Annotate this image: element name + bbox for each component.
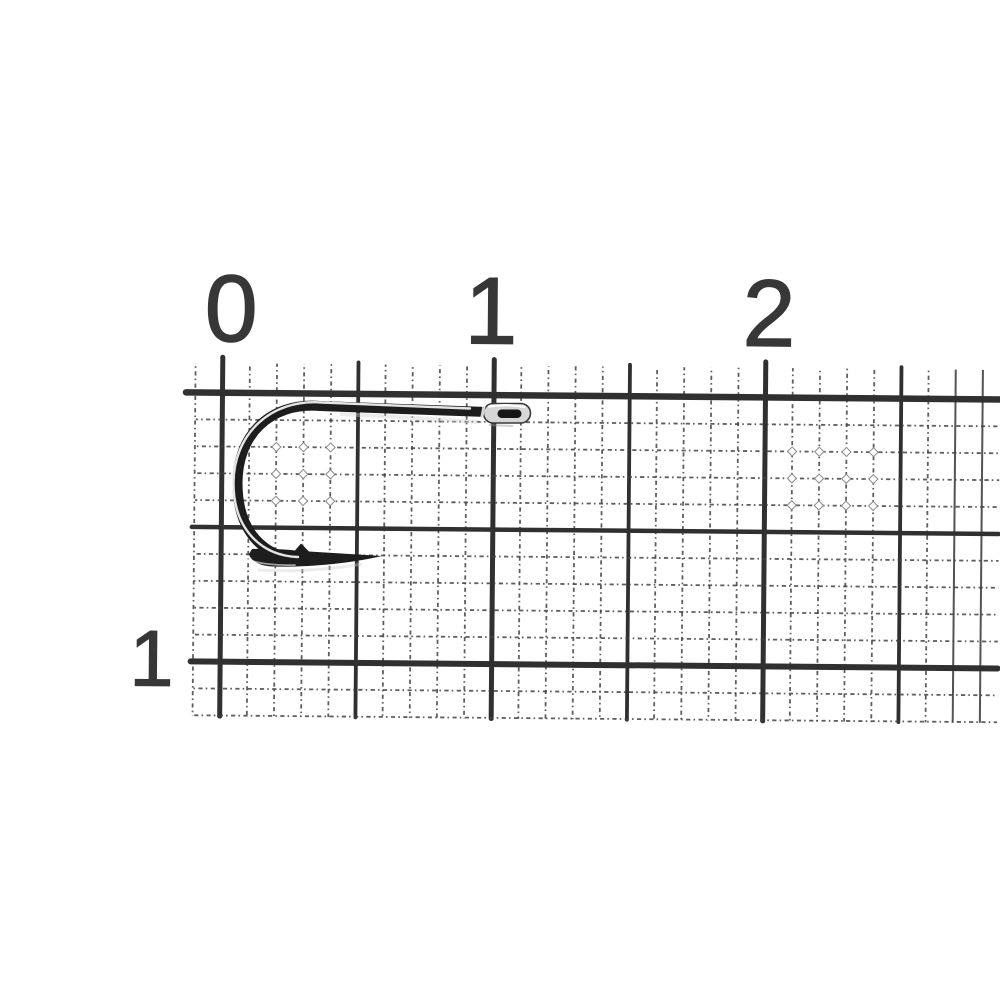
grid-sparkle: [299, 470, 308, 479]
grid-line: [196, 419, 1000, 426]
grid-sparkle: [869, 501, 878, 510]
grid-sparkle: [815, 447, 824, 456]
grid-sparkle: [272, 469, 281, 478]
hook-highlight: [234, 402, 471, 557]
grid-line: [192, 527, 999, 534]
grid-line: [196, 446, 1000, 453]
grid-line: [194, 635, 998, 642]
grid-sparkle: [787, 474, 796, 483]
grid-sparkle: [299, 443, 308, 452]
hook-eye: [481, 404, 531, 427]
grid-sparkle: [841, 501, 850, 510]
grid-sparkle: [869, 475, 878, 484]
grid-line: [186, 392, 1000, 399]
grid-line: [195, 500, 999, 507]
grid-sparkle: [271, 496, 280, 505]
product-photo-scene: 0 1 2 1: [0, 0, 1000, 1000]
grid-sparkle: [326, 470, 335, 479]
hook-eye-junction: [481, 404, 485, 422]
fishing-hook: [234, 402, 531, 571]
grid-line: [194, 581, 998, 588]
grid-sparkle: [842, 447, 851, 456]
grid-line: [195, 473, 999, 480]
grid-line: [191, 661, 998, 668]
grid-sparkle: [788, 447, 797, 456]
grid-sparkle: [326, 443, 335, 452]
ruler-grid: [183, 357, 1000, 723]
hook-eye-shadow: [489, 425, 513, 426]
grid-line: [193, 715, 997, 722]
grid-sparkle: [815, 474, 824, 483]
grid-sparkle: [298, 496, 307, 505]
grid-line: [193, 688, 997, 695]
grid-sparkle: [869, 448, 878, 457]
grid-line: [194, 608, 998, 615]
photo-canvas: [0, 0, 1000, 1000]
grid-sparkle: [787, 501, 796, 510]
hook-eye-hole: [498, 410, 522, 419]
grid-sparkle: [814, 501, 823, 510]
grid-sparkle: [326, 497, 335, 506]
grid-sparkle: [842, 474, 851, 483]
grid-sparkle: [272, 442, 281, 451]
